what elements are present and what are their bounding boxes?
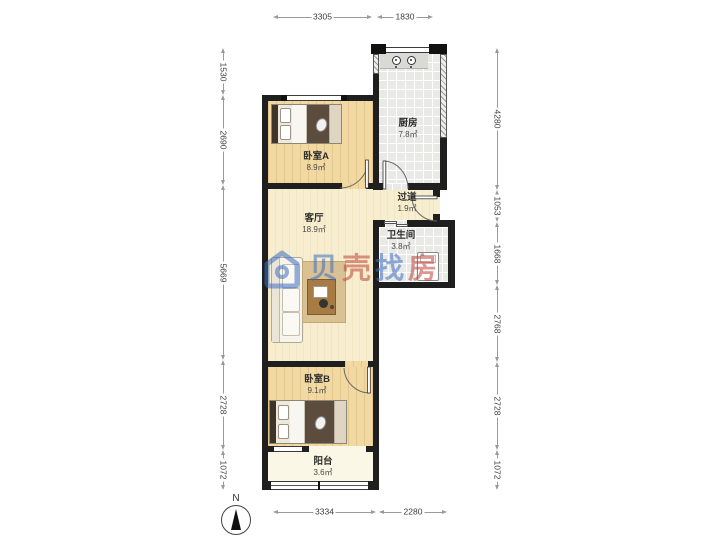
kitchen-left-window — [373, 54, 379, 74]
window-post — [341, 95, 347, 101]
cup-icon — [330, 305, 334, 309]
compass-north-label: N — [220, 494, 252, 504]
kitchen-top-window — [386, 47, 429, 53]
north-arrow-icon — [221, 505, 251, 535]
room-label-balcony: 阳台 3.6㎡ — [313, 457, 332, 478]
wall-post — [429, 44, 447, 54]
dimension-bottom-2: 2280 — [379, 508, 447, 516]
bed-icon — [269, 400, 347, 444]
pillow-icon — [278, 424, 289, 439]
dimension-right-6: 1072 — [493, 450, 501, 490]
window-post — [318, 481, 320, 490]
kitchen-counter — [380, 53, 428, 69]
stove-burner-icon — [392, 56, 401, 65]
pillow-icon — [278, 405, 289, 420]
wall-segment — [368, 481, 379, 490]
floor-plan-page: { "plan_title": "two-bedroom apartment f… — [0, 0, 720, 540]
wall-segment — [448, 220, 455, 288]
pillow-icon — [280, 108, 291, 123]
kettle-icon — [319, 299, 328, 308]
dimension-left-1: 1530 — [219, 48, 227, 95]
dimension-top-1: 3305 — [273, 13, 372, 21]
kitchen-side-window — [440, 54, 447, 138]
kitchen-door-arc — [383, 161, 410, 190]
dimension-right-3: 1668 — [493, 222, 501, 285]
dimension-bottom-1: 3334 — [273, 508, 376, 516]
wall-segment — [302, 446, 309, 452]
dimension-left-2: 2690 — [219, 95, 227, 185]
compass: N — [220, 494, 252, 535]
wall-segment — [366, 446, 379, 452]
dimension-left-3: 5669 — [219, 185, 227, 360]
wall-segment — [408, 183, 447, 190]
bed-lamp-icon — [314, 117, 329, 134]
dimension-right-4: 2768 — [493, 285, 501, 362]
bedroom-b-door-arc — [344, 367, 372, 394]
dimension-right-1: 4280 — [493, 48, 501, 190]
bedroom-a-door-arc — [340, 160, 370, 189]
wall-segment — [262, 95, 268, 490]
wall-segment — [262, 446, 274, 452]
dimension-left-4: 2728 — [219, 360, 227, 450]
room-label-living: 客厅 18.9㎡ — [302, 214, 326, 235]
wall-post — [371, 44, 386, 54]
bathroom-sliding-door — [396, 224, 408, 227]
room-label-kitchen: 厨房 7.8㎡ — [398, 119, 417, 140]
room-label-bedroom-b: 卧室B 9.1㎡ — [304, 375, 330, 396]
dimension-right-2: 1053 — [493, 190, 501, 222]
wall-segment — [262, 183, 342, 189]
wall-segment — [373, 183, 383, 190]
wall-segment — [262, 361, 345, 367]
dimension-top-2: 1830 — [377, 13, 433, 21]
dimension-left-5: 1072 — [219, 450, 227, 490]
bedroom-b-window — [274, 446, 302, 452]
bedroom-a-window — [287, 95, 341, 101]
bed-icon — [271, 104, 342, 144]
bed-lamp-icon — [313, 415, 328, 432]
wall-segment — [262, 481, 271, 490]
dimension-right-5: 2728 — [493, 362, 501, 450]
watermark-text: 贝 壳 找 房 — [309, 255, 441, 284]
room-label-hallway: 过道 1.9㎡ — [397, 193, 416, 214]
stove-burner-icon — [407, 56, 416, 65]
beike-house-logo-icon — [263, 249, 301, 289]
watermark: 贝 壳 找 房 — [263, 249, 441, 289]
room-label-bedroom-a: 卧室A 8.9㎡ — [303, 152, 329, 173]
pillow-icon — [280, 125, 291, 140]
doorway-patch — [309, 446, 366, 452]
